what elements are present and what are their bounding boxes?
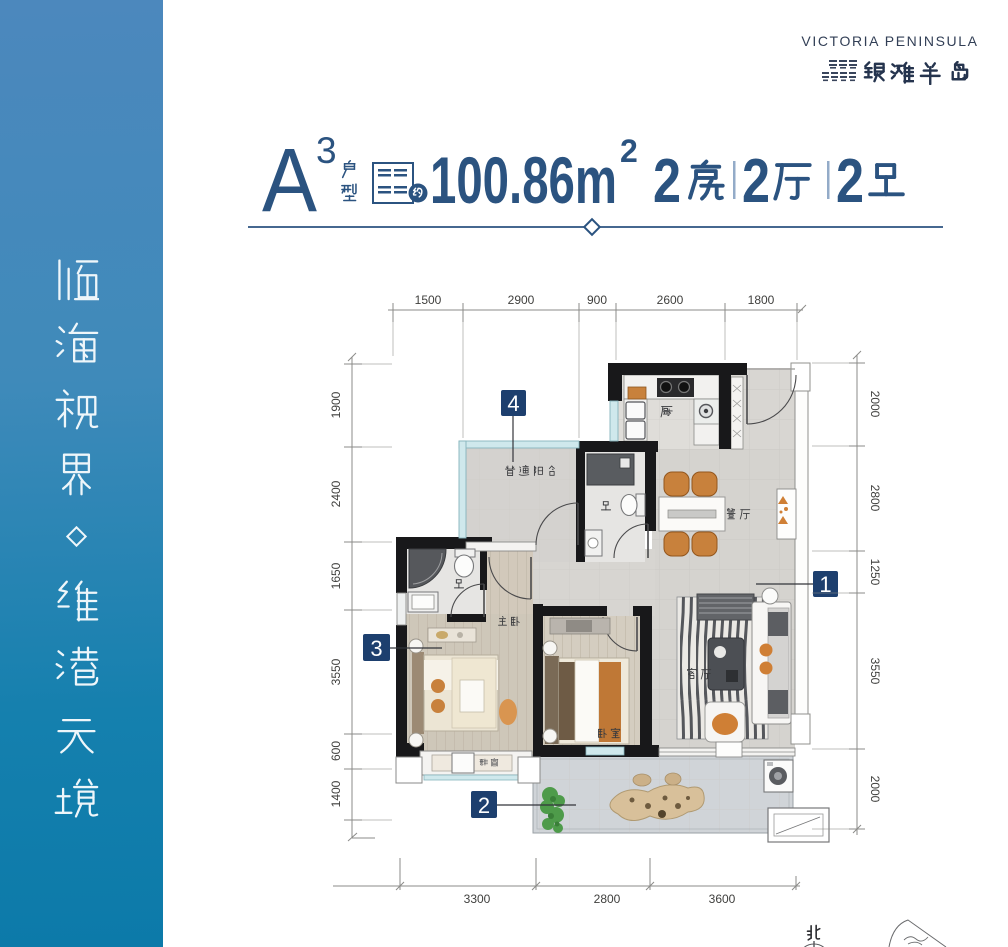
svg-text:3: 3 [370, 636, 382, 661]
svg-text:2: 2 [620, 133, 638, 169]
svg-text:2000: 2000 [868, 391, 882, 418]
svg-text:2600: 2600 [657, 293, 684, 307]
svg-text:1800: 1800 [748, 293, 775, 307]
svg-text:600: 600 [329, 741, 343, 761]
svg-text:A: A [262, 131, 317, 231]
svg-text:3550: 3550 [329, 658, 343, 685]
svg-text:4: 4 [507, 391, 519, 416]
svg-text:2: 2 [478, 793, 490, 818]
svg-text:3600: 3600 [709, 892, 736, 906]
svg-text:1500: 1500 [415, 293, 442, 307]
svg-text:2800: 2800 [868, 485, 882, 512]
svg-text:2900: 2900 [508, 293, 535, 307]
svg-text:3550: 3550 [868, 658, 882, 685]
svg-text:1400: 1400 [329, 780, 343, 807]
svg-text:2000: 2000 [868, 776, 882, 803]
svg-text:2: 2 [742, 147, 770, 216]
svg-text:2: 2 [836, 147, 864, 216]
svg-text:3: 3 [316, 130, 337, 171]
svg-text:2400: 2400 [329, 480, 343, 507]
svg-text:1900: 1900 [329, 391, 343, 418]
svg-text:1650: 1650 [329, 562, 343, 589]
svg-text:VICTORIA PENINSULA: VICTORIA PENINSULA [801, 33, 978, 49]
svg-text:3300: 3300 [464, 892, 491, 906]
svg-text:1250: 1250 [868, 559, 882, 586]
svg-text:2: 2 [653, 147, 681, 216]
svg-text:100.86m: 100.86m [430, 143, 617, 217]
svg-text:2800: 2800 [594, 892, 621, 906]
svg-text:900: 900 [587, 293, 607, 307]
